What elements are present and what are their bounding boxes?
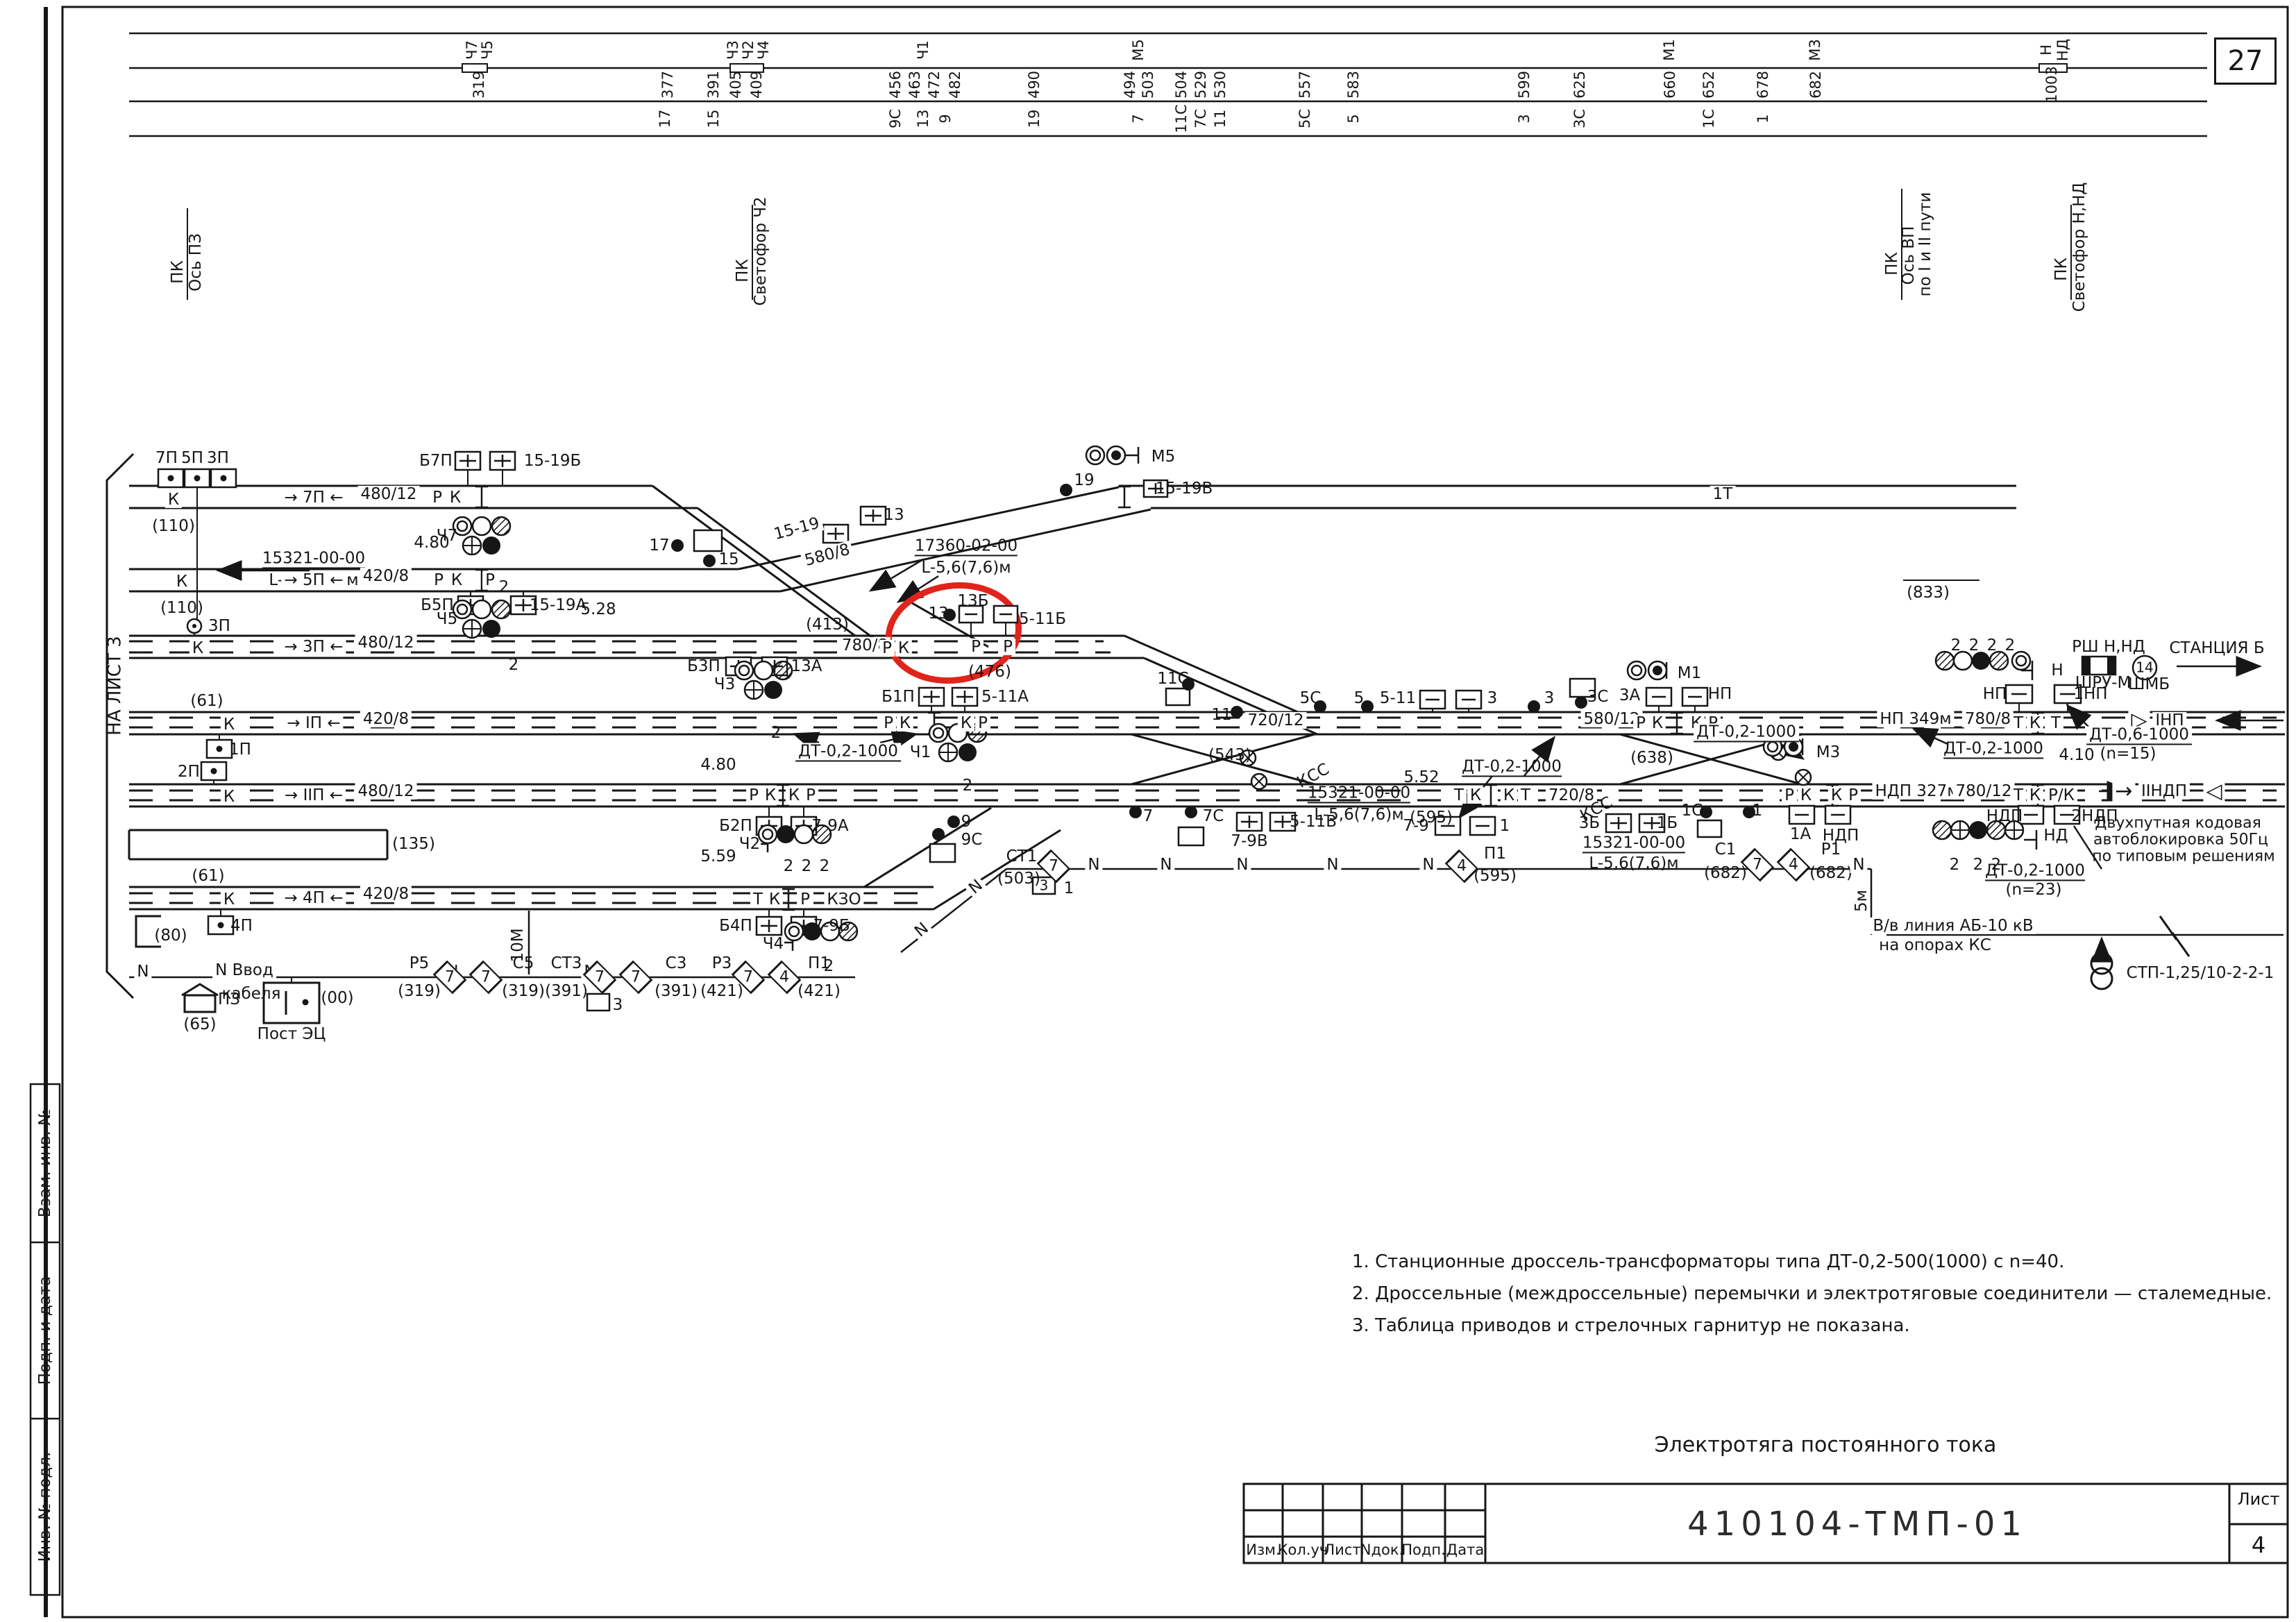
cable-diamond: 7 — [1036, 852, 1072, 880]
diagram-label: 15 — [718, 551, 738, 568]
diagram-label: 15-19А — [530, 597, 587, 614]
diagram-label: L-5,6(7,6)м — [1589, 855, 1678, 872]
diagram-label: К — [895, 640, 912, 657]
cable-diamond: 7 — [730, 963, 766, 991]
cable-diamond: 4 — [1775, 851, 1812, 879]
diagram-label: 2П — [178, 763, 200, 780]
diagram-label: по I и II пути — [1917, 192, 1934, 297]
strip-switch-number: 17 — [657, 110, 673, 128]
diagram-label: (421) — [797, 983, 841, 999]
diagram-label: М3 — [1816, 744, 1840, 761]
diagram-label: Ось ПЗ — [187, 233, 204, 292]
strip-switch-number: 3 — [1517, 114, 1532, 123]
diagram-label: Ось ВП — [1900, 226, 1917, 285]
strip-ordinate: 529 — [1193, 71, 1208, 99]
diagram-label: 15321-00-00 — [1582, 834, 1685, 853]
stamp-header: Лист — [1324, 1541, 1360, 1558]
diagram-label: 3П — [207, 450, 229, 466]
diagram-label: К — [786, 787, 802, 804]
diagram-label: 780/8 — [1962, 711, 2014, 727]
diagram-label: КЗО — [824, 891, 863, 908]
diagram-label: 5-11 — [1380, 690, 1416, 707]
diagram-label: К — [1828, 787, 1845, 804]
stamp-header: Дата — [1446, 1541, 1484, 1558]
diagram-label: 15-19В — [1156, 480, 1213, 497]
diagram-label: НДП 327м — [1872, 783, 1961, 800]
strip-ordinate: 1003 — [2044, 66, 2059, 103]
diagram-label: 14 — [2136, 661, 2153, 675]
diagram-label: Б3П — [687, 658, 720, 675]
diagram-label: N — [1157, 856, 1174, 873]
diagram-label: 4.80 — [700, 757, 736, 773]
diagram-label: ДТ-0,2-1000 — [795, 743, 901, 761]
diagram-label: 2 — [784, 858, 794, 875]
diagram-label: 5м — [1853, 887, 1870, 915]
diagram-label: Светофор Н,НД — [2071, 183, 2088, 312]
diagram-label: К — [2027, 715, 2043, 732]
strip-ordinate: 652 — [1701, 71, 1716, 99]
list-number: 4 — [2252, 1532, 2265, 1558]
diagram-label: 1 — [1064, 880, 1074, 897]
diagram-label: Ч2 — [739, 836, 760, 852]
diagram-label: Ч4 — [763, 936, 784, 952]
diagram-label: Р1 — [1821, 841, 1841, 858]
diagram-label: ДТ-0,2-1000 — [1462, 758, 1562, 777]
strip-switch-number: 5С — [1297, 109, 1312, 128]
diagram-label: Р — [1633, 715, 1648, 732]
diagram-label: К — [958, 715, 974, 732]
strip-switch-number: 11С — [1174, 104, 1189, 133]
diagram-label: 3 — [1040, 879, 1049, 893]
diagram-label: 1С — [1682, 802, 1703, 819]
diagram-label: Б2П — [719, 818, 752, 834]
diagram-label: Пост ЭЦ — [258, 1026, 326, 1042]
diagram-label: К — [1501, 787, 1517, 804]
diagram-label: Т — [2048, 715, 2063, 732]
diagram-label: N — [1850, 856, 1867, 873]
diagram-label: ПЗ — [218, 991, 240, 1008]
strip-signal-name: Ч4 — [756, 40, 771, 60]
diagram-label: НП — [1708, 686, 1732, 702]
diagram-label: автоблокировка 50Гц — [2093, 831, 2268, 847]
diagram-label: ◁ — [2203, 780, 2225, 802]
strip-signal-name: Ч5 — [480, 40, 495, 60]
diagram-label: Р/К — [2045, 787, 2077, 804]
diagram-label: 7-9 — [1403, 818, 1429, 834]
diagram-label: 780/12 — [1953, 783, 2015, 800]
diagram-label: М1 — [1678, 665, 1701, 682]
diagram-label: К — [221, 788, 237, 805]
diagram-label: 13 — [928, 605, 948, 622]
diagram-label: 2 — [771, 725, 782, 741]
sheet-corner-number: 27 — [2214, 37, 2277, 85]
diagram-label: 420/8 — [360, 711, 412, 727]
diagram-label: 3 — [1544, 690, 1555, 707]
drawing-sheet: Ч7Ч5Ч3Ч2Ч4Ч1М5М1М3ННД3193773914054094564… — [0, 0, 2296, 1622]
strip-ordinate: 490 — [1027, 71, 1042, 99]
diagram-label: (135) — [392, 836, 435, 852]
diagram-label: Б4П — [719, 918, 752, 934]
diagram-label: 11С — [1157, 670, 1188, 687]
diagram-label: Т — [1451, 787, 1467, 804]
strip-signal-name: М3 — [1807, 39, 1823, 60]
strip-ordinate: 678 — [1755, 71, 1771, 99]
diagram-label: ДТ-0,2-1000 — [1694, 723, 1799, 742]
diagram-label: N — [910, 918, 934, 943]
diagram-label: НП — [1983, 686, 2007, 702]
diagram-label: СТАНЦИЯ Б — [2169, 640, 2264, 657]
diagram-label: 5С — [1300, 690, 1322, 707]
diagram-label: Т — [750, 891, 766, 908]
diagram-label: 3 — [1487, 690, 1498, 707]
diagram-label: С3 — [666, 955, 687, 972]
diagram-label: (682) — [1809, 865, 1852, 881]
diagram-label: L-5,6(7,6)м — [921, 559, 1011, 576]
diagram-label: П1 — [1484, 845, 1506, 862]
diagram-label: Т — [1518, 787, 1533, 804]
stamp-header: Подп. — [1401, 1541, 1446, 1558]
diagram-label: 3А — [1619, 687, 1640, 704]
diagram-label: Светофор Ч2 — [752, 196, 769, 305]
diagram-label: П1 — [808, 955, 830, 972]
diagram-label: Т — [2011, 787, 2026, 804]
strip-ordinate: 530 — [1213, 71, 1228, 99]
list-label: Лист — [2238, 1489, 2280, 1509]
diagram-label: К — [189, 640, 206, 657]
stamp-header: Изм. — [1246, 1541, 1280, 1558]
diagram-label: 7С — [1203, 808, 1224, 825]
document-number: 410104-ТМП-01 — [1687, 1505, 2027, 1544]
cable-diamond: 7 — [432, 963, 468, 991]
diagram-label: 13Б — [957, 593, 988, 609]
strip-ordinate: 482 — [947, 71, 963, 99]
diagram-label: ДТ-0,2-1000 — [1985, 862, 2085, 881]
diagram-label: 5.52 — [1403, 769, 1439, 786]
diagram-label: К — [447, 489, 464, 506]
diagram-label: 5-11В — [1290, 813, 1337, 830]
diagram-label: 480/12 — [355, 634, 417, 651]
diagram-label: 5 — [1354, 690, 1365, 707]
diagram-label: К — [174, 573, 190, 590]
diagram-label: 2 — [1969, 637, 1980, 654]
diagram-label: 7-9Б — [813, 918, 850, 934]
diagram-label: 9С — [961, 831, 983, 848]
diagram-label: (n=15) — [2100, 745, 2156, 762]
diagram-label: 15-19Б — [524, 453, 582, 469]
diagram-label: (n=23) — [2005, 881, 2061, 898]
diagram-label: 5.59 — [700, 848, 736, 865]
diagram-label: 13 — [884, 507, 904, 523]
diagram-label: N — [1233, 856, 1251, 873]
diagram-label: 580/8 — [800, 541, 854, 571]
diagram-label: В/в линия АБ-10 кВ — [1870, 918, 2036, 934]
diagram-label: Р — [430, 489, 445, 506]
diagram-label: СТ3 — [551, 955, 582, 972]
strip-signal-name: М5 — [1131, 39, 1146, 60]
diagram-label: IIНДП — [2138, 783, 2190, 800]
diagram-label: Р — [1846, 787, 1861, 804]
diagram-label: 2 — [1987, 637, 1998, 654]
note-line: 1. Станционные дроссель-трансформаторы т… — [1352, 1251, 2064, 1272]
cable-diamond: 4 — [766, 963, 802, 991]
diagram-label: К — [2027, 787, 2043, 804]
diagram-label: 5-11А — [981, 688, 1029, 705]
diagram-label: 1Т — [1710, 486, 1736, 502]
strip-signal-name: Ч3 — [725, 40, 741, 60]
diagram-label: 2 — [509, 657, 519, 673]
margin-label: Взам. инв. № — [36, 1109, 54, 1217]
diagram-label: (638) — [1630, 750, 1673, 766]
diagram-label: (110) — [152, 518, 195, 534]
diagram-label: 2 — [1951, 637, 1961, 654]
diagram-label: М5 — [1151, 448, 1175, 465]
diagram-labels-layer: Ч7Ч5Ч3Ч2Ч4Ч1М5М1М3ННД3193773914054094564… — [0, 0, 2296, 1622]
margin-label: Инв. № подл. — [36, 1452, 54, 1562]
diagram-label: (65) — [183, 1016, 216, 1033]
diagram-label: 2 — [1973, 856, 1984, 873]
diagram-label: ПК — [1884, 252, 1900, 276]
diagram-label: ШМБ — [2128, 676, 2170, 693]
diagram-label: Р — [797, 891, 813, 908]
diagram-label: (543) — [1208, 747, 1251, 763]
diagram-label: 7-9А — [811, 818, 848, 834]
margin-label: Подп. и дата — [36, 1276, 54, 1385]
diagram-label: (80) — [154, 927, 187, 944]
diagram-label: (595) — [1474, 868, 1517, 884]
strip-signal-name: НД — [2055, 39, 2070, 61]
diagram-label: С5 — [513, 955, 534, 972]
diagram-label: 3С — [1587, 688, 1609, 705]
diagram-label: на опорах КС — [1879, 937, 1991, 954]
strip-switch-number: 7 — [1131, 114, 1146, 123]
stamp-header: Кол.уч — [1278, 1541, 1328, 1558]
diagram-label: (61) — [192, 868, 224, 884]
diagram-label: 720/8 — [1546, 787, 1597, 804]
strip-switch-number: 1С — [1701, 109, 1716, 128]
note-line: 2. Дроссельные (междроссельные) перемычк… — [1352, 1283, 2272, 1304]
diagram-label: ДТ-0,2-1000 — [1943, 740, 2043, 759]
strip-switch-number: 11 — [1213, 110, 1228, 128]
diagram-label: К — [448, 572, 465, 589]
diagram-label: Р — [881, 715, 896, 732]
diagram-label: Р — [746, 787, 761, 804]
diagram-label: 13А — [791, 658, 822, 675]
strip-ordinate: 377 — [660, 71, 675, 99]
diagram-label: 420/8 — [360, 886, 412, 902]
diagram-label: (391) — [655, 983, 698, 999]
diagram-label: (319) — [502, 983, 545, 999]
diagram-label: 4П — [230, 918, 253, 934]
diagram-label: 2 — [820, 858, 830, 875]
strip-switch-number: 9 — [938, 114, 953, 123]
diagram-label: 3 — [613, 997, 623, 1013]
diagram-label: ПК — [169, 260, 186, 284]
diagram-label: 1 — [1500, 818, 1510, 834]
diagram-label: (00) — [321, 990, 353, 1006]
diagram-label: Ч5 — [437, 611, 457, 627]
strip-ordinate: 472 — [927, 71, 942, 99]
diagram-label: (61) — [190, 693, 223, 709]
diagram-label: 17 — [649, 537, 669, 554]
diagram-label: К — [766, 891, 783, 908]
strip-ordinate: 599 — [1517, 71, 1532, 99]
strip-switch-number: 1 — [1755, 114, 1771, 123]
diagram-label: НА ЛИСТ 3 — [105, 636, 124, 735]
diagram-label: Р — [975, 715, 990, 732]
diagram-label: Р — [1782, 787, 1797, 804]
diagram-label: по типовым решениям — [2092, 848, 2274, 864]
strip-ordinate: 456 — [888, 71, 903, 99]
diagram-label: СТП-1,25/10-2-2-1 — [2127, 965, 2274, 981]
diagram-label: Двухпутная кодовая — [2095, 815, 2261, 831]
diagram-label: 1Б — [1657, 815, 1678, 831]
diagram-label: К — [762, 787, 779, 804]
diagram-label: 2 — [499, 579, 509, 595]
diagram-label: → 5П ← — [281, 572, 346, 589]
diagram-label: С1 — [1715, 841, 1737, 858]
strip-ordinate: 405 — [728, 71, 743, 99]
strip-ordinate: 463 — [907, 71, 922, 99]
diagram-label: Р3 — [712, 955, 732, 972]
diagram-label: 9 — [961, 813, 972, 830]
diagram-label: 19 — [1074, 472, 1094, 489]
diagram-label: N Ввод — [212, 962, 276, 979]
diagram-label: Р — [968, 639, 984, 655]
diagram-label: 15-19 — [770, 514, 825, 544]
diagram-label: 480/12 — [355, 783, 417, 800]
diagram-label: Н — [2051, 662, 2063, 679]
diagram-label: N — [134, 963, 151, 980]
strip-ordinate: 557 — [1297, 71, 1312, 99]
strip-switch-number: 5 — [1346, 114, 1361, 123]
diagram-label: → — [2112, 780, 2135, 802]
diagram-label: К — [165, 491, 182, 508]
strip-ordinate: 494 — [1122, 71, 1138, 99]
diagram-label: РШ Н,НД — [2072, 639, 2145, 655]
diagram-label: → 7П ← — [281, 489, 346, 506]
strip-ordinate: 503 — [1140, 71, 1156, 99]
diagram-label: 1А — [1790, 826, 1811, 843]
diagram-label: → 3П ← — [281, 639, 346, 655]
diagram-label: 2 — [802, 858, 812, 875]
strip-switch-number: 19 — [1027, 110, 1042, 128]
diagram-label: (476) — [968, 664, 1011, 680]
strip-ordinate: 319 — [471, 71, 487, 99]
strip-signal-name: Ч2 — [741, 40, 756, 60]
strip-ordinate: 682 — [1808, 71, 1823, 99]
diagram-label: К — [897, 715, 913, 732]
cable-diamond: 7 — [1739, 851, 1775, 879]
diagram-label: Р — [482, 572, 498, 589]
diagram-label: 720/12 — [1245, 712, 1307, 729]
diagram-label: 2 — [2005, 637, 2016, 654]
drawing-title: Электротяга постоянного тока — [1655, 1433, 1997, 1458]
diagram-label: 7П — [155, 450, 178, 466]
diagram-label: ДТ-0,6-1000 — [2086, 726, 2192, 745]
diagram-label: ПК — [734, 259, 751, 282]
diagram-label: 5-11Б — [1019, 611, 1066, 627]
diagram-label: Ч7 — [437, 527, 457, 544]
diagram-label: → IIП ← — [282, 787, 346, 804]
diagram-label: (833) — [1907, 584, 1950, 601]
cable-diamond: 7 — [468, 963, 504, 991]
diagram-label: 7 — [1143, 808, 1154, 825]
diagram-label: Ч3 — [714, 676, 735, 693]
strip-ordinate: 504 — [1174, 71, 1189, 99]
diagram-label: 15321-00-00 — [1308, 784, 1410, 803]
diagram-label: НДП — [1986, 808, 2023, 825]
strip-ordinate: 625 — [1572, 71, 1587, 99]
cable-diamond: 4 — [1444, 852, 1480, 880]
diagram-label: СТ1 — [1006, 848, 1038, 865]
strip-ordinate: 660 — [1662, 71, 1678, 99]
diagram-label: К — [1467, 787, 1484, 804]
strip-switch-number: 15 — [706, 110, 721, 128]
diagram-label: Р — [879, 640, 895, 657]
diagram-label: (413) — [806, 616, 849, 633]
diagram-label: (503) — [997, 870, 1040, 887]
diagram-label: К — [1649, 715, 1666, 732]
diagram-label: → 4П ← — [281, 890, 346, 906]
strip-switch-number: 9С — [888, 109, 903, 128]
cable-diamond: 7 — [582, 963, 618, 991]
diagram-label: → IП ← — [284, 715, 343, 732]
diagram-label: 5П — [181, 450, 203, 466]
diagram-label: Р — [1000, 639, 1015, 655]
strip-ordinate: 409 — [749, 71, 764, 99]
diagram-label: ПК — [2053, 257, 2070, 281]
strip-signal-name: Ч1 — [915, 40, 931, 60]
diagram-label: 3П — [208, 618, 230, 634]
strip-signal-name: Н — [2038, 44, 2054, 56]
strip-signal-name: М1 — [1662, 39, 1677, 60]
diagram-label: 480/12 — [358, 486, 420, 502]
diagram-label: 2 — [1950, 856, 1960, 873]
diagram-label: N — [1085, 856, 1102, 873]
diagram-label: Р5 — [410, 955, 430, 972]
diagram-label: К — [221, 891, 237, 908]
diagram-label: 17360-02-00 — [915, 537, 1018, 556]
diagram-label: N — [1419, 856, 1437, 873]
diagram-label: Т — [2011, 715, 2026, 732]
diagram-label: Ч1 — [910, 744, 931, 761]
strip-signal-name: Ч7 — [464, 40, 480, 60]
diagram-label: 3Б — [1579, 815, 1600, 831]
diagram-label: (110) — [160, 600, 203, 616]
diagram-label: 2 — [963, 777, 973, 794]
stamp-header: Nдок. — [1360, 1541, 1403, 1558]
diagram-label: N — [964, 875, 988, 899]
cable-diamond: 7 — [618, 963, 654, 991]
diagram-label: N — [1324, 856, 1341, 873]
diagram-label: ШРУ-М — [2075, 675, 2132, 691]
diagram-label: 1 — [1753, 802, 1763, 819]
diagram-label: 15321-00-00 — [262, 550, 365, 568]
strip-switch-number: 7С — [1193, 109, 1208, 128]
diagram-label: НД — [2043, 827, 2068, 844]
diagram-label: Р — [803, 787, 818, 804]
diagram-label: 4.10 — [2059, 747, 2094, 763]
note-line: 3. Таблица приводов и стрелочных гарниту… — [1352, 1315, 1910, 1336]
strip-switch-number: 13 — [915, 110, 931, 128]
diagram-label: 420/8 — [360, 568, 412, 584]
diagram-label: 11 — [1211, 707, 1231, 723]
diagram-label: 7-9В — [1231, 833, 1267, 850]
diagram-label: К — [1798, 787, 1814, 804]
diagram-label: Б7П — [419, 453, 453, 469]
strip-switch-number: 3С — [1572, 109, 1587, 128]
diagram-label: Р — [431, 572, 446, 589]
